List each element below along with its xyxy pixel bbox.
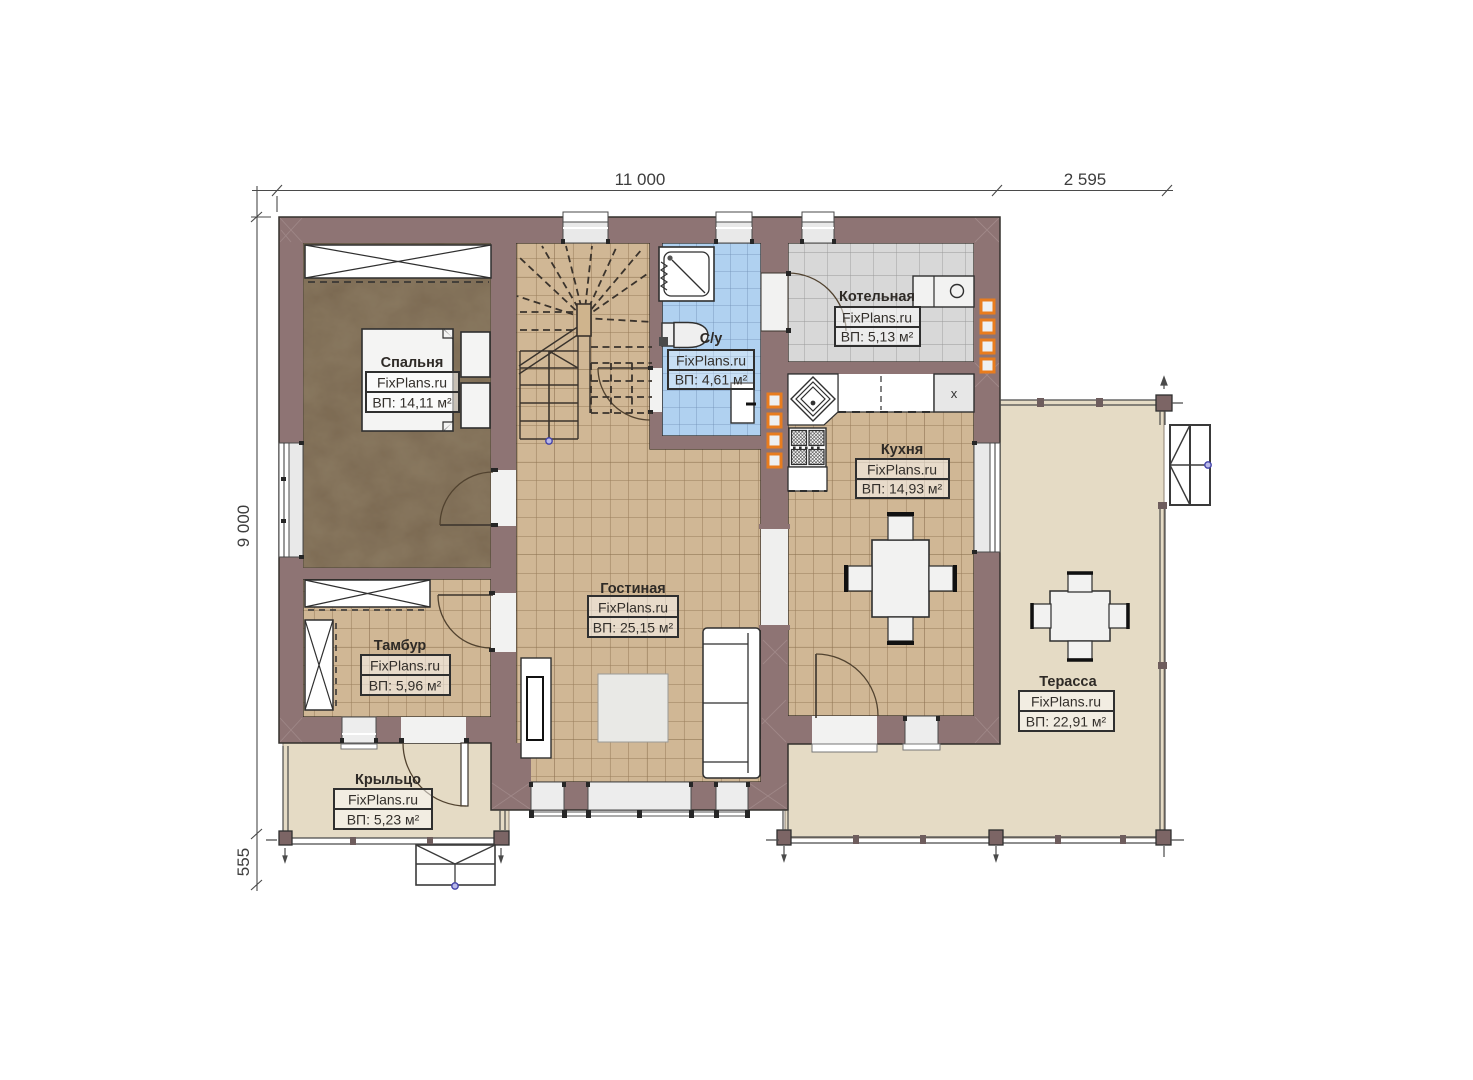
svg-text:FixPlans.ru: FixPlans.ru <box>377 375 447 391</box>
svg-text:11 000: 11 000 <box>615 170 666 189</box>
svg-text:FixPlans.ru: FixPlans.ru <box>676 353 746 369</box>
svg-text:Крыльцо: Крыльцо <box>355 772 421 788</box>
svg-text:ВП: 14,93 м²: ВП: 14,93 м² <box>862 481 943 497</box>
svg-text:Тамбур: Тамбур <box>374 638 427 654</box>
svg-text:С/у: С/у <box>700 331 723 347</box>
svg-text:ВП: 25,15 м²: ВП: 25,15 м² <box>593 620 674 636</box>
svg-text:9 000: 9 000 <box>234 505 253 548</box>
svg-text:Кухня: Кухня <box>881 442 923 458</box>
svg-text:ВП: 5,96 м²: ВП: 5,96 м² <box>369 678 442 694</box>
svg-text:FixPlans.ru: FixPlans.ru <box>842 310 912 326</box>
svg-text:FixPlans.ru: FixPlans.ru <box>1031 694 1101 710</box>
svg-text:ВП: 5,23 м²: ВП: 5,23 м² <box>347 812 420 828</box>
svg-text:555: 555 <box>234 848 253 876</box>
svg-text:FixPlans.ru: FixPlans.ru <box>348 792 418 808</box>
svg-text:x: x <box>951 386 958 401</box>
svg-text:Котельная: Котельная <box>839 289 915 305</box>
svg-text:ВП: 22,91 м²: ВП: 22,91 м² <box>1026 714 1107 730</box>
svg-text:ВП: 4,61 м²: ВП: 4,61 м² <box>675 372 748 388</box>
svg-text:2 595: 2 595 <box>1064 170 1107 189</box>
svg-text:Спальня: Спальня <box>381 355 444 371</box>
svg-text:Терасса: Терасса <box>1039 674 1097 690</box>
svg-text:FixPlans.ru: FixPlans.ru <box>370 658 440 674</box>
svg-text:ВП: 5,13 м²: ВП: 5,13 м² <box>841 329 914 345</box>
svg-text:FixPlans.ru: FixPlans.ru <box>598 600 668 616</box>
svg-text:ВП: 14,11 м²: ВП: 14,11 м² <box>372 395 452 411</box>
svg-text:Гостиная: Гостиная <box>600 581 666 597</box>
svg-text:FixPlans.ru: FixPlans.ru <box>867 462 937 478</box>
